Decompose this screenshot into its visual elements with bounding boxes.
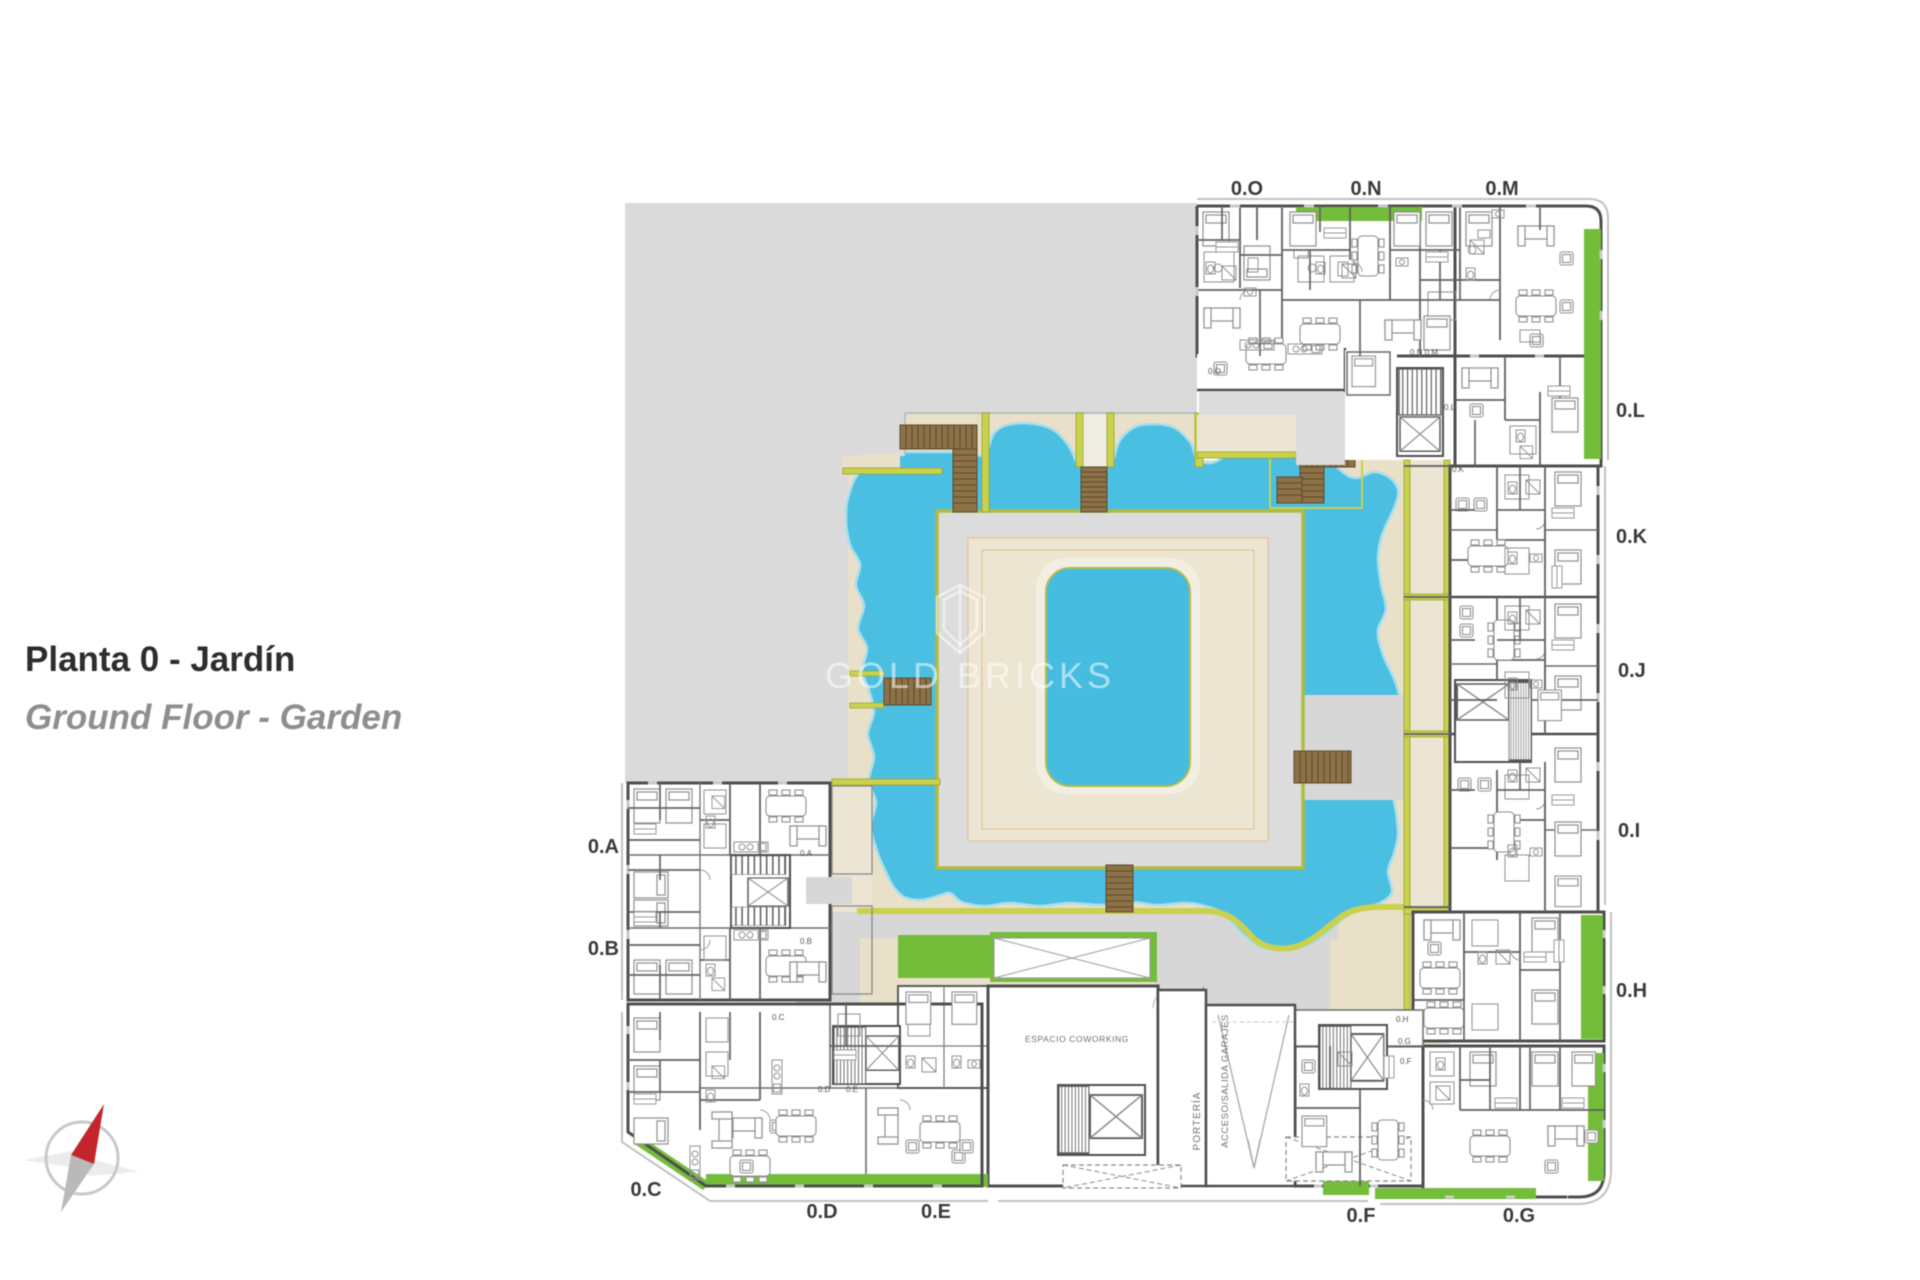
svg-text:0.G: 0.G <box>1398 1037 1411 1046</box>
svg-text:PORTERÍA: PORTERÍA <box>1190 1092 1203 1151</box>
svg-text:0.G: 0.G <box>1503 1205 1535 1227</box>
svg-text:0.C: 0.C <box>630 1179 661 1201</box>
svg-text:ESPACIO COWORKING: ESPACIO COWORKING <box>1025 1034 1129 1044</box>
svg-text:0.I: 0.I <box>1618 820 1640 842</box>
svg-text:0.B: 0.B <box>588 938 619 960</box>
svg-text:0.J: 0.J <box>1618 660 1646 682</box>
svg-text:GOLD BRICKS: GOLD BRICKS <box>825 655 1115 696</box>
svg-text:0.B: 0.B <box>800 937 812 946</box>
svg-text:0.C: 0.C <box>772 1013 785 1022</box>
svg-text:Planta 0 - Jardín: Planta 0 - Jardín <box>25 640 295 679</box>
svg-text:0.A: 0.A <box>588 836 619 858</box>
svg-text:0.K: 0.K <box>1616 526 1648 548</box>
svg-text:0.D: 0.D <box>818 1085 831 1094</box>
svg-text:0.L: 0.L <box>1444 403 1456 412</box>
svg-text:0.K: 0.K <box>1452 465 1465 474</box>
svg-text:0.F: 0.F <box>1347 1205 1376 1227</box>
svg-text:0.H: 0.H <box>1616 980 1647 1002</box>
svg-text:0.O: 0.O <box>1208 367 1221 376</box>
svg-text:0.O: 0.O <box>1231 178 1263 200</box>
svg-text:0.F: 0.F <box>1400 1057 1412 1066</box>
svg-text:ACCESO/SALIDA GARAJES: ACCESO/SALIDA GARAJES <box>1220 1014 1231 1148</box>
svg-text:0.D: 0.D <box>806 1201 837 1223</box>
svg-text:0.N: 0.N <box>1350 178 1381 200</box>
svg-text:0.E: 0.E <box>921 1201 951 1223</box>
svg-text:0.E: 0.E <box>846 1085 858 1094</box>
svg-text:0.M: 0.M <box>1485 178 1518 200</box>
svg-text:0.H: 0.H <box>1396 1015 1409 1024</box>
svg-text:0.A: 0.A <box>800 849 813 858</box>
svg-text:0.N 0.M: 0.N 0.M <box>1410 348 1438 357</box>
svg-text:Ground Floor - Garden: Ground Floor - Garden <box>25 698 402 737</box>
svg-text:0.L: 0.L <box>1616 400 1645 422</box>
